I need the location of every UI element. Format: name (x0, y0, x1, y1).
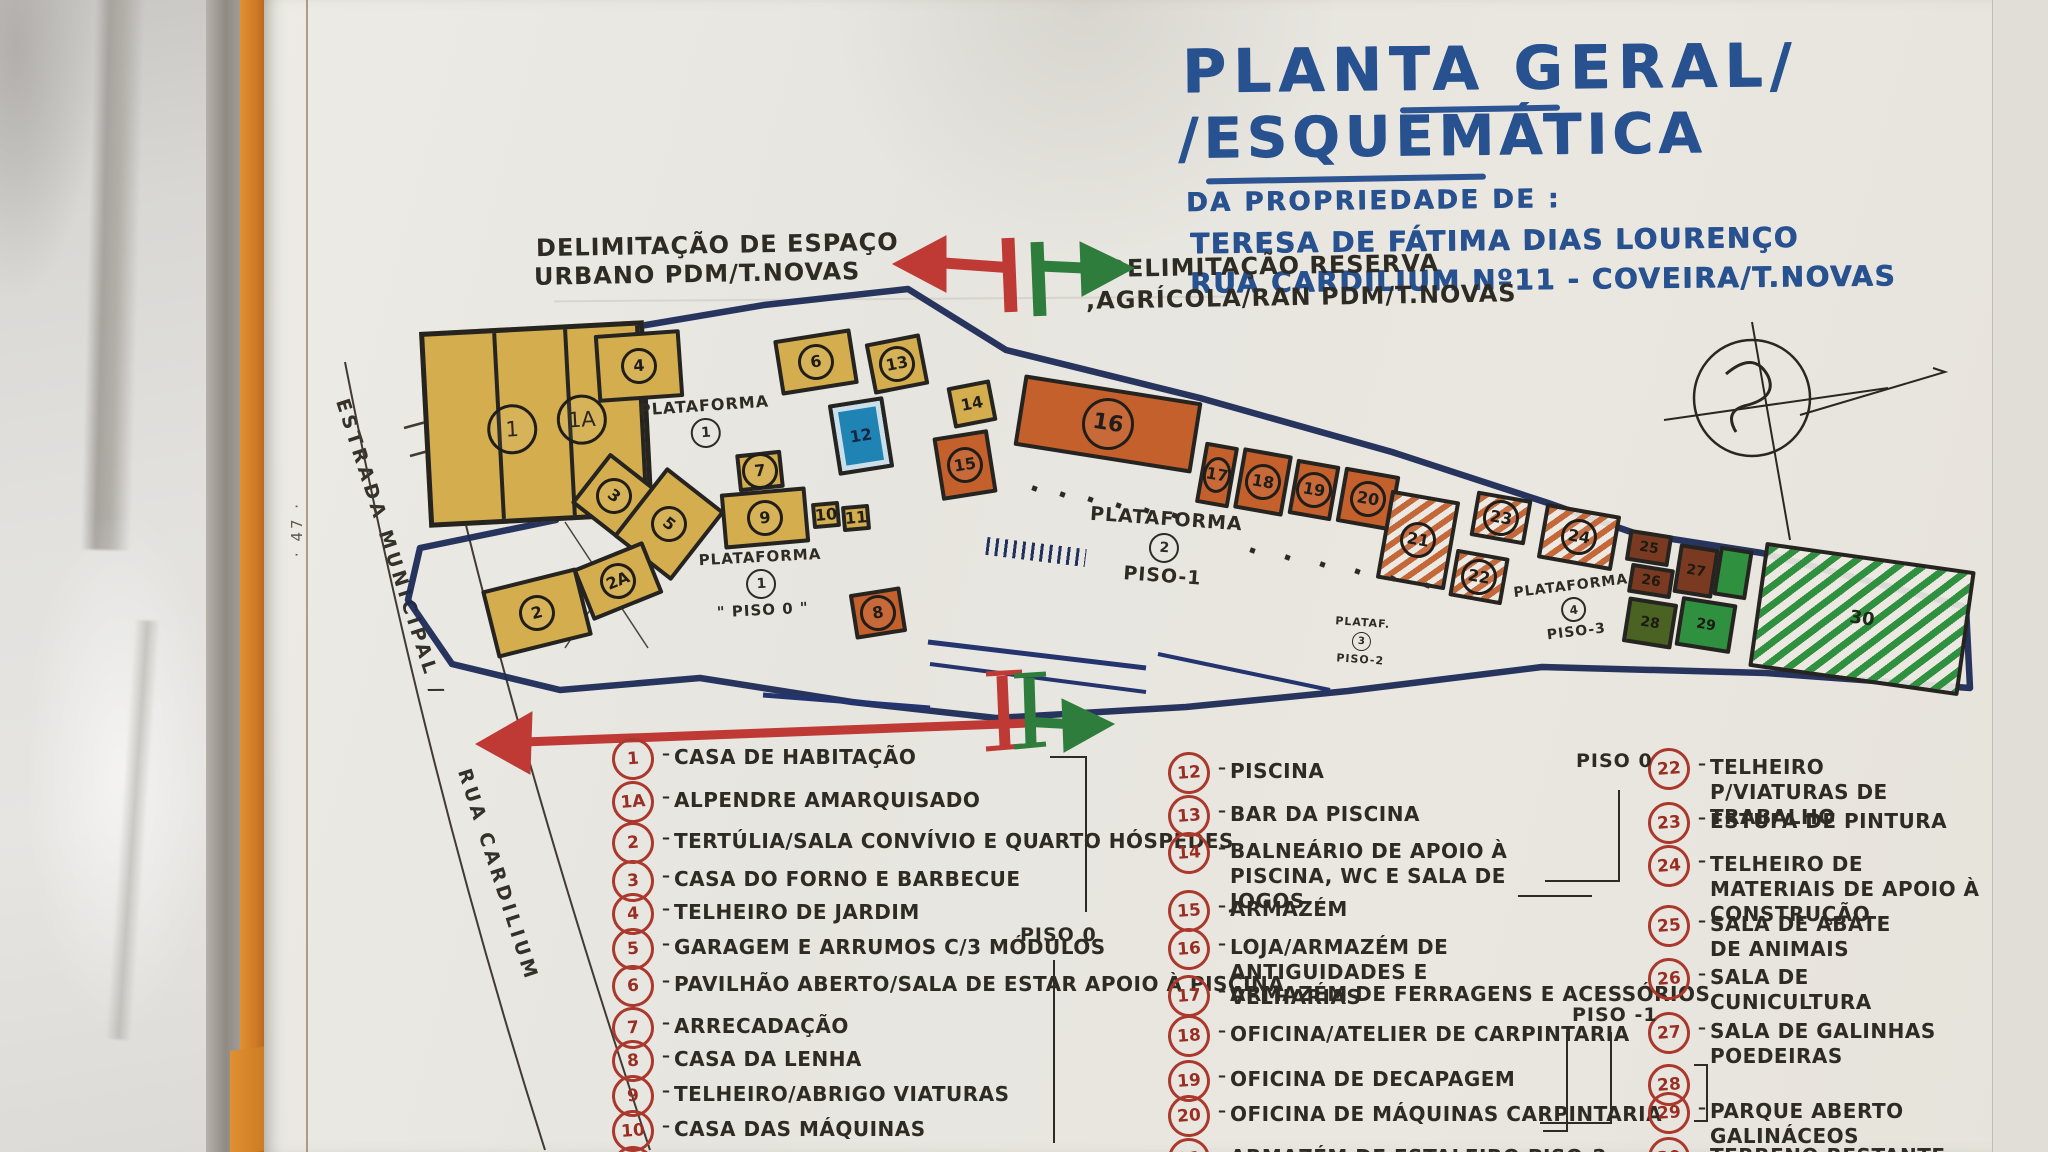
legend-item-label: TERTÚLIA/SALA CONVÍVIO E QUARTO HÓSPEDES (674, 829, 1234, 854)
legend-item-dash: – (1218, 896, 1226, 915)
legend-item-number: 30 (1647, 1136, 1692, 1152)
legend-item: 26 – SALA DE CUNICULTURA (1648, 958, 1870, 1015)
building-number: 7 (740, 451, 780, 491)
legend-item-dash: – (1218, 838, 1226, 857)
legend-item-dash: – (662, 1116, 670, 1135)
building-number: 18 (1242, 461, 1284, 503)
legend-item-label: ALPENDRE AMARQUISADO (674, 788, 980, 813)
legend-bracket (1085, 756, 1087, 912)
legend-item-dash: – (1218, 801, 1226, 820)
legend-item: 25 – SALA DE ABATE DE ANIMAIS (1648, 905, 1910, 962)
red-arrow-top-left-icon (893, 236, 1014, 312)
legend-item-label: SALA DE CUNICULTURA (1710, 965, 1870, 1015)
legend-item-dash: – (1218, 1144, 1226, 1152)
platform-number: 2 (1148, 532, 1180, 564)
legend-item-dash: – (1698, 1018, 1706, 1037)
legend-item: 12 – PISCINA (1168, 752, 1324, 794)
legend-item-label: CASA DE HABITAÇÃO (674, 745, 916, 770)
legend-item: 30 – TERRENO RESTANTE (1648, 1137, 1946, 1152)
legend-item-label: TELHEIRO/ABRIGO VIATURAS (674, 1082, 1010, 1107)
legend-item: 27 – SALA DE GALINHAS POEDEIRAS (1648, 1012, 1940, 1069)
legend-item-dash: – (1218, 1101, 1226, 1120)
legend-item: 2 – TERTÚLIA/SALA CONVÍVIO E QUARTO HÓSP… (612, 822, 1234, 864)
legend-item-dash: – (662, 828, 670, 847)
legend-item-dash: – (662, 1081, 670, 1100)
legend-item-number: 29 (1647, 1091, 1692, 1136)
building-number: 16 (1078, 394, 1137, 453)
building-18: 18 (1233, 447, 1293, 517)
legend-item-number: 22 (1647, 747, 1692, 792)
legend-item-number: 25 (1647, 904, 1692, 949)
building-number: 27 (1685, 563, 1706, 580)
legend-item-label: SALA DE GALINHAS POEDEIRAS (1710, 1019, 1940, 1069)
building-number: 26 (1640, 573, 1661, 590)
legend-item-label: SALA DE ABATE DE ANIMAIS (1710, 912, 1910, 962)
legend-item-dash: – (1218, 1066, 1226, 1085)
legend-item: 1 – CASA DE HABITAÇÃO (612, 738, 916, 780)
building-23: 23 (1469, 490, 1532, 545)
legend-bracket (1545, 880, 1620, 882)
legend-item-number: 12 (1167, 751, 1212, 796)
legend-item-dash: – (1218, 1021, 1226, 1040)
legend-bracket (1543, 1130, 1568, 1132)
building-number: 21 (1397, 519, 1439, 561)
building-15: 15 (932, 429, 997, 501)
legend-item-dash: – (1698, 1143, 1706, 1152)
legend-item: 15 – ARMAZÉM (1168, 890, 1348, 932)
legend-item-number: 1A (611, 780, 656, 825)
building-10: 10 (811, 501, 841, 529)
legend-item-number: 24 (1647, 844, 1692, 889)
photographed-site-plan: · 47 · PLANTA GERAL/ /ESQUEMÁTICA DA PRO… (0, 0, 2048, 1152)
legend-item-dash: – (662, 1046, 670, 1065)
legend-item-dash: – (1698, 754, 1706, 773)
legend-item-dash: – (662, 1013, 670, 1032)
legend-item: 23 – ESTUFA DE PINTURA (1648, 802, 1947, 844)
legend-item-number: 1 (611, 737, 656, 782)
legend-item-dash: – (662, 787, 670, 806)
legend-item-dash: – (662, 866, 670, 885)
building-9: 9 (720, 486, 811, 549)
ramp-line (930, 664, 1146, 692)
legend-item-label: CASA DO FORNO E BARBECUE (674, 867, 1021, 892)
platform-number: 3 (1351, 631, 1371, 651)
legend-item-number: 17 (1167, 974, 1212, 1019)
building-4: 4 (594, 329, 685, 403)
building-12: 12 (828, 396, 895, 476)
legend-item-dash: – (1698, 808, 1706, 827)
building-number: 19 (1293, 469, 1335, 511)
platform-1-label: PLATAFORMA 1 (638, 392, 772, 453)
legend-item-number: 2 (611, 821, 656, 866)
legend-bracket (1610, 1032, 1612, 1124)
building-number: 2 (515, 591, 559, 635)
legend-item-dash: – (662, 934, 670, 953)
building-number: 23 (1480, 497, 1522, 539)
legend-piso0-mid-note: PISO 0 (1020, 924, 1097, 946)
building-number: 9 (745, 498, 784, 537)
legend-piso0-right-note: PISO 0 (1576, 750, 1653, 772)
building-number: 20 (1347, 478, 1389, 520)
legend-item-number: 16 (1167, 927, 1212, 972)
legend-item-dash: – (1218, 981, 1226, 1000)
legend-item: 18 – OFICINA/ATELIER DE CARPINTARIA (1168, 1015, 1630, 1057)
legend-item-number: 23 (1647, 801, 1692, 846)
legend-item-dash: – (1698, 964, 1706, 983)
platform-edge-line (763, 695, 930, 708)
legend-item: 21 – ARMAZÉM DE ESTALEIRO PISO-2 (1168, 1138, 1607, 1152)
legend-item-label: OFICINA DE DECAPAGEM (1230, 1067, 1515, 1092)
legend-item: 1A – ALPENDRE AMARQUISADO (612, 781, 980, 823)
legend-item-label: TERRENO RESTANTE (1710, 1144, 1946, 1152)
legend-bracket-28-29 (1694, 1120, 1708, 1122)
legend-item-dash: – (1698, 1098, 1706, 1117)
legend-item-dash: – (662, 971, 670, 990)
legend-item-number: 21 (1167, 1137, 1212, 1152)
legend-item-number: 18 (1167, 1014, 1212, 1059)
building-11: 11 (841, 504, 871, 532)
ramp-line (928, 642, 1146, 668)
building-number: 13 (876, 343, 918, 385)
legend-item-label: PISCINA (1230, 759, 1324, 784)
building-number: 15 (944, 444, 985, 485)
legend-item-label: ARMAZÉM (1230, 897, 1348, 922)
road-tick (404, 422, 426, 428)
building-number: 17 (1200, 455, 1234, 495)
legend-item-dash: – (662, 744, 670, 763)
building-7: 7 (735, 450, 785, 493)
legend-bracket (1540, 1122, 1612, 1124)
building-29: 29 (1674, 596, 1737, 654)
building-number: 29 (1695, 617, 1716, 634)
legend-item-label: ESTUFA DE PINTURA (1710, 809, 1947, 834)
building-number: 14 (960, 394, 985, 414)
legend-item-number: 14 (1167, 831, 1212, 876)
legend-item-number: 15 (1167, 889, 1212, 934)
building-22: 22 (1448, 549, 1510, 606)
legend-bracket (1566, 1032, 1568, 1132)
legend-bracket (1518, 895, 1592, 897)
building-number: 25 (1638, 540, 1659, 557)
legend-bracket-28-29 (1694, 1064, 1708, 1066)
legend-item-number: 20 (1167, 1094, 1212, 1139)
legend-item-label: CASA DA LENHA (674, 1047, 862, 1072)
compass-rose (1664, 322, 1945, 540)
legend-bracket (1050, 756, 1087, 758)
legend-item: 11 (612, 1146, 666, 1152)
legend-item-label: CASA DAS MÁQUINAS (674, 1117, 926, 1142)
platform-number: 1 (746, 568, 778, 600)
platform-2-label: PLATAFORMA 2 PISO-1 (1085, 503, 1243, 592)
legend-item-dash: – (1698, 851, 1706, 870)
legend-item-number: 11 (611, 1145, 656, 1152)
legend-bracket (1053, 960, 1055, 1143)
legend-item-label: TELHEIRO DE JARDIM (674, 900, 920, 925)
legend-item-label: ARMAZÉM DE ESTALEIRO PISO-2 (1230, 1145, 1607, 1152)
building-25: 25 (1625, 529, 1673, 567)
building-number: 12 (849, 426, 873, 445)
building-13: 13 (865, 333, 930, 395)
legend-item-label: BAR DA PISCINA (1230, 802, 1420, 827)
legend-item-dash: – (1218, 934, 1226, 953)
legend-piso-minus1-note: PISO -1 (1572, 1004, 1658, 1026)
building-number: 10 (814, 506, 838, 524)
building-number: 2A (595, 558, 642, 605)
building-number: 30 (1848, 608, 1875, 629)
legend-item-number: 6 (611, 964, 656, 1009)
building-8: 8 (849, 586, 908, 640)
building-14: 14 (946, 379, 997, 429)
building-number: 8 (857, 592, 898, 633)
building-number: 22 (1458, 556, 1500, 598)
platform-name: PLATAF. (1335, 614, 1391, 631)
legend-item-dash: – (1218, 758, 1226, 777)
building-number: 28 (1639, 615, 1660, 632)
legend-item-number: 26 (1647, 957, 1692, 1002)
platform-1-piso0-label: PLATAFORMA 1 " PISO 0 " (698, 545, 824, 622)
legend-bracket-28-29 (1706, 1064, 1708, 1122)
building-number: 6 (795, 341, 836, 382)
legend-item-label: OFICINA/ATELIER DE CARPINTARIA (1230, 1022, 1630, 1047)
legend-item: 20 – OFICINA DE MÁQUINAS CARPINTARIA (1168, 1095, 1662, 1137)
building-number: 11 (844, 509, 868, 527)
platform-number: 4 (1560, 596, 1588, 624)
legend-item-dash: – (1698, 911, 1706, 930)
platform-3-label: PLATAF. 3 PISO-2 (1332, 614, 1390, 668)
legend-item: 13 – BAR DA PISCINA (1168, 795, 1420, 837)
green-arrow-top-right-icon (1037, 242, 1134, 316)
legend-item-dash: – (662, 899, 670, 918)
platform-number: 1 (690, 417, 722, 449)
building-number: 24 (1558, 516, 1600, 558)
legend-item-label: ARRECADAÇÃO (674, 1014, 849, 1039)
ramp-line (1158, 654, 1330, 690)
building-number: 4 (620, 347, 658, 385)
building-number: 5 (644, 499, 695, 550)
legend-bracket (1618, 790, 1620, 882)
